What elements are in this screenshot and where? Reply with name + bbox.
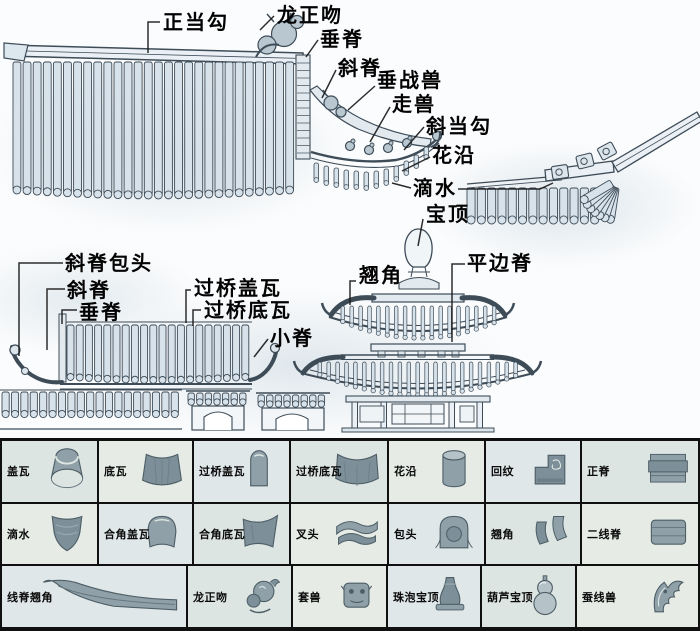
callout-guoqiaogaiwa: 过桥盖瓦: [194, 279, 282, 299]
part-cell: 正脊: [582, 441, 698, 502]
callout-xieji-top: 斜脊: [338, 59, 382, 79]
part-cell: 过桥盖瓦: [194, 441, 289, 502]
screenshot-root: 正当勾 龙正吻 垂脊 斜脊 垂战兽 走兽 斜当勾 花沿 滴水 宝顶 平边脊 翘角…: [0, 0, 700, 631]
leader-line: [62, 310, 77, 324]
part-label: 盖瓦: [7, 463, 30, 479]
part-cell: 叉头: [291, 504, 387, 565]
leader-line: [148, 22, 160, 53]
part-cell: 蚕线兽: [577, 566, 698, 627]
pan-tile-icon: [134, 447, 190, 495]
silk-line-beast-icon: [640, 573, 696, 621]
sleeve-beast-head-icon: [328, 573, 384, 621]
part-label: 底瓦: [104, 463, 127, 479]
callout-longzhengwen: 龙正吻: [277, 6, 343, 26]
leader-line: [19, 263, 63, 356]
double-line-ridge-icon: [640, 510, 696, 558]
part-cell: 合角底瓦: [194, 504, 289, 565]
part-label: 合角盖瓦: [104, 526, 150, 542]
part-label: 合角底瓦: [199, 526, 245, 542]
leader-line: [350, 281, 356, 305]
leader-line: [186, 290, 191, 323]
part-cell: 二线脊: [582, 504, 698, 565]
leader-line: [402, 157, 430, 171]
callout-qiaojiao: 翘角: [359, 266, 403, 286]
leader-line: [254, 339, 268, 357]
leader-line: [370, 107, 390, 142]
wrap-head-block-icon: [426, 510, 482, 558]
leader-line: [193, 310, 201, 326]
parts-table-row: 滴水合角盖瓦合角底瓦叉头包头翘角二线脊: [2, 504, 698, 565]
part-label: 蚕线兽: [582, 589, 617, 605]
dragon-kiss-ornament-icon: [233, 573, 289, 621]
part-cell: 龙正吻: [188, 566, 291, 627]
part-label: 滴水: [7, 526, 30, 542]
callout-huayan: 花沿: [432, 146, 476, 166]
callout-xieji-mid: 斜脊: [67, 281, 111, 301]
part-cell: 珠泡宝顶: [388, 566, 480, 627]
callout-zhengdanggou: 正当勾: [163, 13, 229, 33]
leader-line: [404, 127, 424, 150]
callout-dishui: 滴水: [413, 179, 457, 199]
part-label: 翘角: [491, 526, 514, 542]
leader-line: [418, 219, 423, 246]
leader-line: [322, 70, 336, 98]
part-label: 叉头: [296, 526, 319, 542]
part-cell: 葫芦宝顶: [482, 566, 575, 627]
cap-tile-icon: [39, 447, 95, 495]
part-label: 过桥底瓦: [296, 463, 342, 479]
part-cell: 花沿: [389, 441, 484, 502]
upturned-corner-tile-icon: [522, 510, 578, 558]
part-label: 珠泡宝顶: [393, 589, 439, 605]
flower-edge-tile-icon: [426, 447, 482, 495]
part-cell: 线脊翘角: [2, 566, 186, 627]
callout-zoushou: 走兽: [392, 95, 436, 115]
part-label: 回纹: [491, 463, 514, 479]
part-label: 套兽: [298, 589, 321, 605]
part-label: 葫芦宝顶: [487, 589, 533, 605]
leader-line: [458, 183, 553, 189]
part-cell: 翘角: [486, 504, 580, 565]
part-label: 线脊翘角: [7, 589, 53, 605]
line-ridge-corner-icon: [36, 573, 184, 621]
part-cell: 回纹: [486, 441, 580, 502]
drip-tile-icon: [39, 510, 95, 558]
diagram-stage: 正当勾 龙正吻 垂脊 斜脊 垂战兽 走兽 斜当勾 花沿 滴水 宝顶 平边脊 翘角…: [0, 0, 700, 438]
part-label: 二线脊: [587, 526, 622, 542]
parts-table: 盖瓦底瓦过桥盖瓦过桥底瓦花沿回纹正脊滴水合角盖瓦合角底瓦叉头包头翘角二线脊线脊翘…: [0, 438, 700, 631]
part-cell: 底瓦: [99, 441, 192, 502]
part-label: 花沿: [394, 463, 417, 479]
fret-scroll-block-icon: [522, 447, 578, 495]
part-label: 龙正吻: [193, 589, 228, 605]
callout-chuizhanshou: 垂战兽: [377, 71, 443, 91]
part-label: 包头: [394, 526, 417, 542]
callout-xiedanggou: 斜当勾: [426, 117, 492, 137]
parts-table-row: 盖瓦底瓦过桥盖瓦过桥底瓦花沿回纹正脊: [2, 441, 698, 502]
leader-line: [452, 264, 465, 342]
callout-pingbianji: 平边脊: [467, 254, 533, 274]
part-cell: 合角盖瓦: [99, 504, 192, 565]
part-label: 过桥盖瓦: [199, 463, 245, 479]
callout-xiaoji: 小脊: [270, 329, 314, 349]
callout-baoding: 宝顶: [426, 205, 470, 225]
callout-chuiji-mid: 垂脊: [79, 303, 123, 323]
fork-head-block-icon: [329, 510, 385, 558]
part-cell: 滴水: [2, 504, 97, 565]
part-cell: 过桥底瓦: [291, 441, 387, 502]
parts-table-row: 线脊翘角龙正吻套兽珠泡宝顶葫芦宝顶蚕线兽: [2, 566, 698, 627]
callout-chuiji-top: 垂脊: [320, 30, 364, 50]
leader-line: [348, 86, 375, 110]
part-label: 正脊: [587, 463, 610, 479]
part-cell: 盖瓦: [2, 441, 97, 502]
leader-line: [392, 183, 411, 188]
callout-guoqiaodiwa: 过桥底瓦: [204, 301, 292, 321]
part-cell: 包头: [389, 504, 484, 565]
main-ridge-block-icon: [640, 447, 696, 495]
part-cell: 套兽: [293, 566, 386, 627]
leader-line: [306, 40, 318, 57]
leader-line: [260, 16, 274, 30]
callout-xiejibaotou: 斜脊包头: [65, 254, 153, 274]
